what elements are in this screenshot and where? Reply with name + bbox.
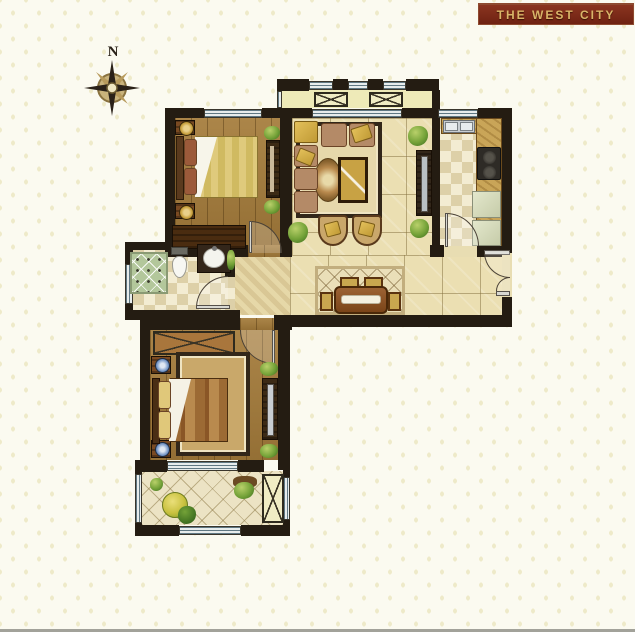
window-bedroom-1 (204, 109, 262, 118)
window-balcony-top (348, 81, 368, 90)
wall-segment (283, 315, 512, 327)
pillow-icon (184, 168, 197, 195)
wall-segment (432, 118, 440, 257)
pillow-icon (158, 411, 171, 439)
wall-segment (238, 460, 264, 472)
washbasin-icon (203, 248, 225, 268)
sofa-icon (294, 191, 318, 213)
nightstand-lamp-icon (179, 121, 194, 136)
floor-hallway (235, 257, 290, 315)
wall-segment (432, 90, 440, 109)
stove-burner (483, 166, 496, 179)
table-runner (341, 295, 381, 304)
sink-basin (460, 122, 473, 131)
window-balcony-side (277, 91, 282, 108)
door-leaf (249, 221, 252, 253)
floor-plan (0, 0, 635, 640)
footer-strip (0, 632, 635, 640)
nightstand-lamp-icon (155, 358, 170, 373)
doorway-bedroom-2 (240, 318, 274, 330)
doorway-kitchen (444, 246, 477, 257)
floor-balcony-top (282, 90, 432, 108)
stove-burner (483, 151, 496, 164)
wall-segment (140, 318, 240, 330)
sink-basin (445, 122, 458, 131)
wall-segment (368, 79, 383, 90)
wall-segment (140, 318, 150, 470)
wall-segment (402, 108, 438, 118)
wall-segment (430, 245, 444, 257)
window-kitchen (438, 109, 478, 118)
sofa-icon (294, 168, 318, 190)
balcony-planter-box (314, 92, 348, 107)
wall-segment (135, 525, 179, 536)
sofa-icon (321, 123, 347, 147)
wall-segment (277, 79, 309, 91)
entry-door-leaf (496, 291, 510, 296)
nightstand-lamp-icon (179, 205, 194, 220)
pillow-icon (184, 139, 197, 166)
refrigerator-icon (472, 191, 501, 218)
window-balcony-top (309, 81, 333, 90)
window-living-room (312, 109, 402, 118)
pillow-icon (158, 381, 171, 409)
window-balcony-bottom-side (135, 474, 142, 523)
balcony-cabinet (262, 474, 284, 523)
wall-segment (333, 79, 348, 90)
sofa-corner-cushion (294, 121, 318, 143)
wall-segment (278, 318, 290, 470)
coffee-table-icon (338, 157, 368, 203)
balcony-planter-box (369, 92, 403, 107)
dresser-handle (270, 146, 274, 192)
nightstand-lamp-icon (155, 442, 170, 457)
shower-icon (130, 252, 168, 294)
faucet (212, 246, 217, 251)
wall-segment (502, 108, 512, 253)
plant-icon (227, 250, 235, 270)
tv-screen (267, 384, 274, 436)
floor-plan-page: THE WEST CITY N (0, 0, 635, 640)
window-balcony-bottom (179, 526, 241, 535)
door-leaf (445, 213, 448, 247)
toilet-tank (171, 247, 188, 255)
wall-segment (241, 525, 290, 536)
bed-headboard (176, 136, 184, 200)
dining-chair-icon (388, 292, 401, 311)
dining-chair-icon (320, 292, 333, 311)
window-balcony-bottom-side (283, 477, 290, 520)
window-bedroom-2 (167, 461, 238, 471)
window-balcony-top (383, 81, 406, 90)
door-leaf (272, 330, 275, 364)
door-leaf (196, 305, 230, 309)
tv-screen (421, 156, 428, 212)
